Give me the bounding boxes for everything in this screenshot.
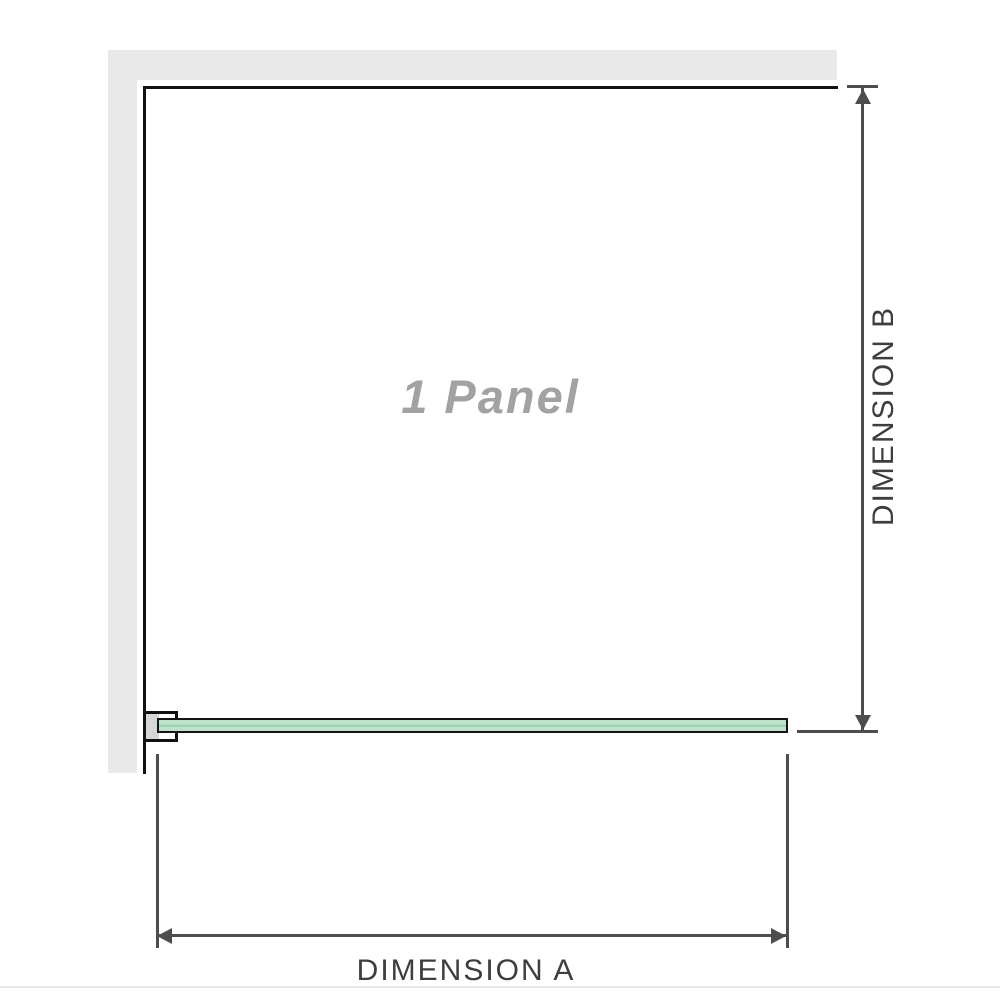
dimension-a-left-extension-line (156, 754, 159, 948)
dimension-a-right-extension-line (786, 754, 789, 948)
panel-count-label: 1 Panel (401, 369, 580, 424)
glass-panel-midline (159, 724, 786, 727)
dimension-b-top-tick (847, 85, 878, 88)
dimension-b-line (861, 88, 864, 730)
dimension-a-arrow-right-icon (771, 928, 786, 944)
dimension-a-line (159, 934, 786, 937)
page-bottom-divider (0, 986, 1000, 988)
dimension-b-bottom-tick (797, 730, 878, 733)
dimension-b-arrow-up-icon (855, 89, 871, 104)
panel-area: 1 Panel (143, 86, 838, 706)
glass-panel-plan-view (157, 718, 788, 733)
wall-left-strip (108, 50, 137, 773)
dimension-a-label: DIMENSION A (357, 954, 576, 988)
dimension-a-arrow-left-icon (157, 928, 172, 944)
wall-top-strip (108, 50, 837, 80)
dimension-b-arrow-down-icon (855, 715, 871, 730)
shower-screen-dimension-diagram: 1 Panel DIMENSION B DIMENSION A (0, 0, 1000, 1000)
dimension-b-label: DIMENSION B (867, 306, 901, 526)
